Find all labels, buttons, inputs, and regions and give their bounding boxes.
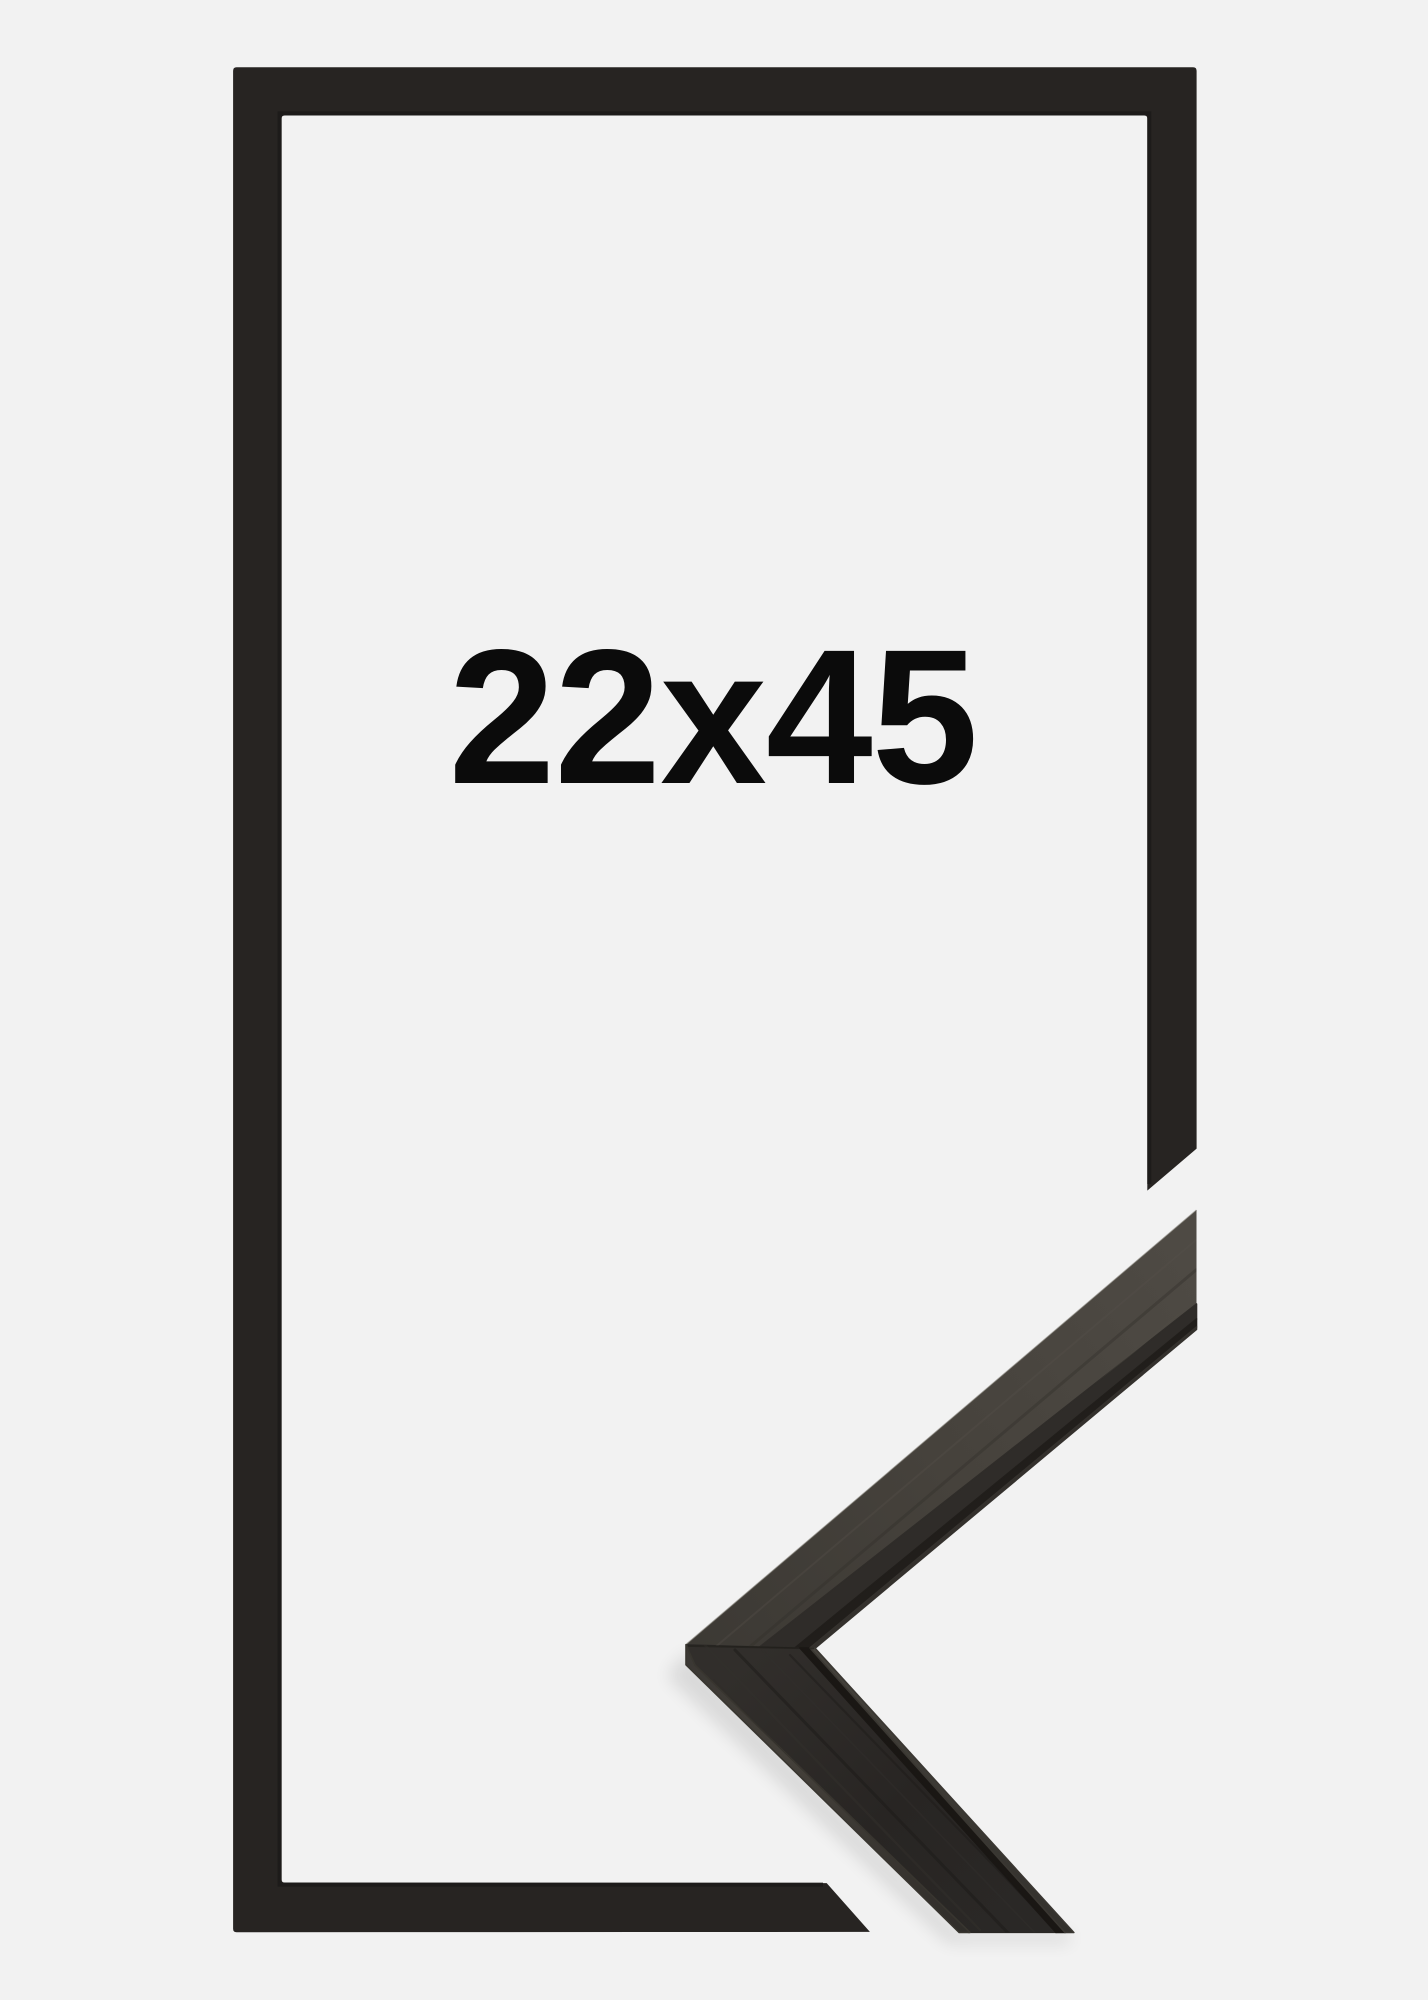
svg-text:22x45: 22x45 — [449, 609, 978, 824]
